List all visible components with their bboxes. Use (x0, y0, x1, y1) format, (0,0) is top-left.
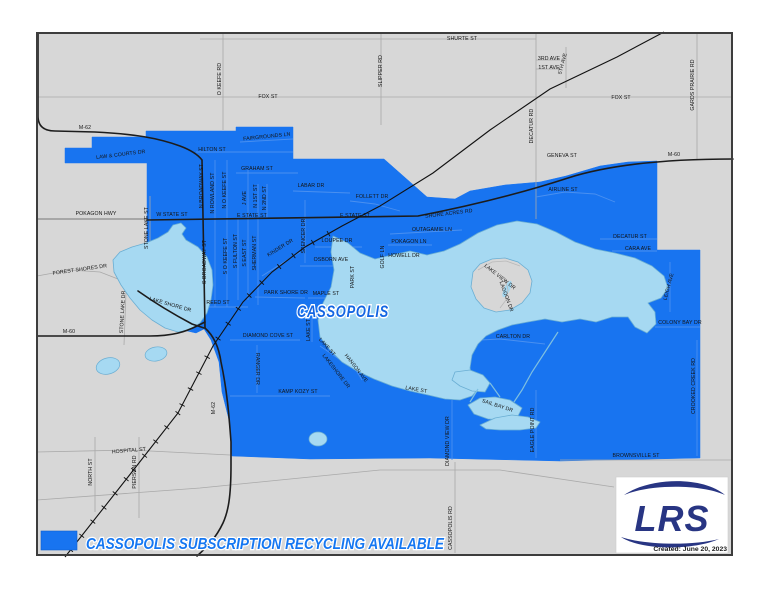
street-label: M-62 (79, 125, 91, 131)
street-label: O KEEFE RD (217, 63, 223, 96)
street-label: FOX ST (258, 94, 278, 100)
street-label: N 2ND ST (262, 185, 268, 210)
street-label: GARDS PRAIRIE RD (690, 59, 696, 110)
street-label: E STATE ST (340, 213, 371, 219)
street-label: M-60 (63, 329, 75, 335)
street-label: OUTAGAMIE LN (412, 227, 452, 233)
street-label: PARK SHORE DR (264, 290, 308, 296)
street-label: SHURTE ST (447, 36, 478, 42)
street-label: E STATE ST (237, 213, 268, 219)
street-label: STONE LAKE ST (144, 206, 150, 249)
street-label: MAPLE ST (313, 291, 340, 297)
street-label: HILTON ST (198, 147, 226, 153)
cassopolis-recycling-map: SHURTE STO KEEFE RDFOX STSLIPPER RD3RD A… (0, 0, 768, 593)
street-label: KAMP KOZY ST (278, 389, 318, 395)
street-label: POKAGON LN (391, 239, 426, 245)
street-label: N ROWLAND ST (210, 172, 216, 214)
street-label: SPENCER DR (301, 218, 307, 253)
street-label: N 1ST ST (253, 184, 259, 208)
street-label: FOX ST (611, 95, 631, 101)
street-label: GOLF LN (380, 245, 386, 268)
street-label: POKAGON HWY (76, 211, 117, 217)
street-label: NORTH ST (88, 458, 94, 486)
street-label: DECATUR RD (529, 109, 535, 144)
street-label: S EAST ST (242, 239, 248, 267)
street-label: CARA AVE (625, 246, 652, 252)
street-label: RANGER DR (254, 353, 260, 385)
street-label: GENEVA ST (547, 153, 578, 159)
legend-swatch (41, 531, 77, 550)
map-credit: Created: June 20, 2023 (653, 546, 727, 553)
street-label: N BROADWAY ST (199, 163, 205, 208)
street-label: SLIPPER RD (378, 55, 384, 87)
street-label: OSBORN AVE (314, 257, 349, 263)
street-label: DIAMOND COVE ST (243, 333, 294, 339)
street-label: CARLTON DR (496, 334, 530, 340)
street-label: FOLLETT DR (356, 194, 389, 200)
street-label: W STATE ST (156, 212, 188, 218)
map-page: SHURTE STO KEEFE RDFOX STSLIPPER RD3RD A… (0, 0, 768, 593)
street-label: J AVE (242, 190, 248, 205)
street-label: CASSOPOLIS RD (448, 506, 454, 550)
street-label: 3RD AVE (538, 56, 561, 62)
street-label: HOWELL DR (388, 253, 420, 259)
street-label: PIERSON RD (132, 455, 138, 488)
street-label: REED ST (206, 300, 230, 306)
street-label: M-62 (211, 402, 217, 414)
street-label: S FULTON ST (233, 233, 239, 268)
street-label: GRAHAM ST (241, 166, 273, 172)
street-label: 1ST AVE (538, 65, 560, 71)
street-label: DECATUR ST (613, 234, 647, 240)
city-label: CASSOPOLIS (297, 302, 389, 321)
street-label: SHERMAN ST (252, 235, 258, 271)
street-label: CROOKED CREEK RD (691, 358, 697, 414)
street-label: S O KEEFE ST (223, 237, 229, 274)
lrs-logo-text: LRS (635, 498, 710, 539)
street-label: DIAMOND VIEW DR (445, 416, 451, 466)
street-label: COLONY BAY DR (658, 320, 702, 326)
street-label: EAGLE POINT RD (530, 407, 536, 452)
street-label: LOUPEE DR (322, 238, 353, 244)
street-label: LAKE ST (306, 318, 312, 341)
pond (309, 432, 327, 446)
street-label: S BROADWAY ST (202, 239, 208, 284)
street-label: N O KEEFE ST (222, 171, 228, 209)
lrs-logo: LRS Created: June 20, 2023 (616, 477, 728, 553)
street-label: AIRLINE ST (548, 187, 578, 193)
street-label: LABAR DR (298, 183, 325, 189)
street-label: BROWNSVILLE ST (613, 453, 661, 459)
street-label: M-60 (668, 152, 680, 158)
street-label: PARK ST (350, 265, 356, 288)
legend-label: CASSOPOLIS SUBSCRIPTION RECYCLING AVAILA… (86, 536, 445, 553)
